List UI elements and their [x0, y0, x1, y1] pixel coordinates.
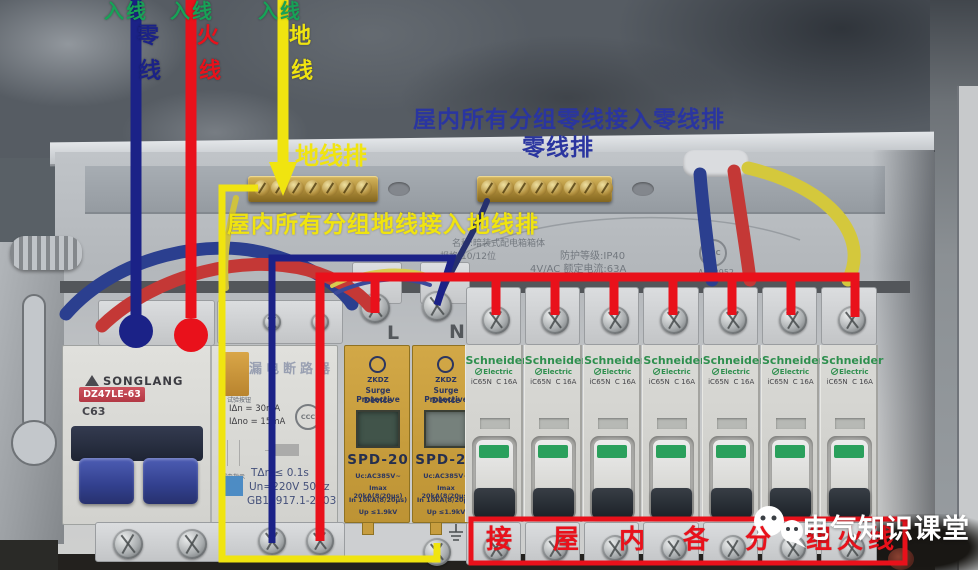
spd-logo-icon [437, 356, 454, 373]
rcd-spec-t: TΔn ≤ 0.1s [251, 467, 309, 479]
spd-spec-in: In 10kA(8/20μs) [345, 496, 411, 504]
ground-note: 屋内所有分组地线接入地线排 [227, 213, 539, 237]
branch-live-char: 屋 [553, 527, 579, 554]
wire-entry-cutout [683, 150, 749, 177]
rcd-model-band: DZ47LE-63 [79, 387, 145, 402]
rcd-circuit-diagram [225, 436, 341, 470]
rcd-ccc-logo: CCC [295, 404, 321, 430]
spd-foot [362, 521, 374, 535]
breaker-toggle-green-stripe [716, 445, 746, 458]
spd-terminal-n-label: N [449, 321, 465, 343]
rcd-test-label: 试验按钮 [227, 395, 251, 404]
terminal-screw [660, 306, 688, 334]
breaker-brand: Schneider [643, 354, 700, 367]
terminal-screw [360, 293, 390, 323]
breaker-toggle-grip [533, 488, 574, 518]
terminal-screw [258, 527, 286, 555]
ccc-serial: A062952 [698, 268, 734, 277]
conduit-connector [10, 236, 82, 270]
breaker-brand-sub: Electric [703, 367, 760, 376]
breaker-brand-sub: Electric [584, 367, 641, 376]
breaker-toggle-grip [711, 488, 752, 518]
brass-terminal-screw [531, 180, 547, 196]
branch-live-char: 内 [619, 527, 645, 554]
incoming-label-char1: 零 [137, 25, 159, 48]
incoming-label-tag: 入线 [258, 1, 302, 22]
breaker-brand: Schneider [821, 354, 878, 367]
branch-live-char: 分 [745, 527, 771, 554]
rcd-module-title: 漏电断路器 [249, 358, 334, 377]
terminal-screw [601, 306, 629, 334]
breaker-toggle-green-stripe [656, 445, 686, 458]
breaker-model: iC65N C 16A [525, 378, 582, 386]
brass-terminal-screw [356, 180, 372, 196]
breaker-model: iC65N C 16A [584, 378, 641, 386]
breaker-toggle-green-stripe [479, 445, 509, 458]
branch-live-char: 接 [486, 527, 512, 554]
bracket-keyhole [11, 420, 57, 466]
schneider-logo-icon [712, 368, 719, 375]
incoming-label-char2: 线 [291, 60, 313, 83]
schneider-logo-icon [772, 368, 779, 375]
ground-bar-label: 地线排 [295, 144, 367, 169]
breaker-model: iC65N C 16A [703, 378, 760, 386]
breaker-model: iC65N C 16A [762, 378, 819, 386]
breaker-label-window [539, 418, 569, 429]
branch-breaker: SchneiderElectriciC65N C 16A [583, 345, 641, 522]
rcd-toggle-handle-right [143, 458, 198, 504]
branch-breaker: SchneiderElectriciC65N C 16A [642, 345, 700, 522]
spd-logo-icon [369, 356, 386, 373]
rail-knockout [632, 182, 654, 196]
brass-terminal-screw [322, 180, 338, 196]
breaker-model: iC65N C 16A [466, 378, 523, 386]
incoming-label-char2: 线 [199, 60, 221, 83]
branch-breaker: SchneiderElectriciC65N C 16A [820, 345, 878, 522]
rcd-rating: C63 [82, 405, 105, 418]
brass-terminal-screw [580, 180, 596, 196]
terminal-screw [263, 313, 281, 331]
brass-terminal-screw [498, 180, 514, 196]
breaker-brand: Schneider [762, 354, 819, 367]
orange-sticker [223, 352, 249, 396]
breaker-brand: Schneider [466, 354, 523, 367]
schneider-logo-icon [653, 368, 660, 375]
brass-terminal-screw [305, 180, 321, 196]
rcd-brand: SONGLANG [103, 374, 183, 388]
brass-terminal-screw [597, 180, 613, 196]
brass-terminal-screw [481, 180, 497, 196]
terminal-screw [482, 306, 510, 334]
spd-desc2: Device [345, 396, 411, 405]
rcd-spec-un: Un=220V 50Hz [249, 481, 329, 493]
spd-status-window [356, 410, 400, 448]
schneider-logo-icon [475, 368, 482, 375]
rcd-top-terminal-block [98, 300, 215, 346]
neutral-note-line1: 屋内所有分组零线接入零线排 [413, 108, 725, 132]
breaker-toggle-green-stripe [775, 445, 805, 458]
breaker-brand-sub: Electric [466, 367, 523, 376]
bracket-keyhole-slot [22, 294, 46, 432]
breaker-brand-sub: Electric [762, 367, 819, 376]
watermark-text: 电气知识课堂 [802, 507, 970, 546]
breaker-label-window [657, 418, 687, 429]
breaker-toggle-grip [651, 488, 692, 518]
rcd-spec-idn: IΔn = 30mA [229, 404, 280, 414]
schneider-logo-icon [831, 368, 838, 375]
ground-bus-bar [248, 176, 378, 202]
breaker-toggle-handle [476, 440, 513, 493]
rcd-spec-idno: IΔno = 15mA [229, 417, 285, 427]
breaker-toggle-handle [831, 440, 868, 493]
breaker-model: iC65N C 16A [643, 378, 700, 386]
neutral-bus-bar [477, 176, 612, 202]
panel-info-current: 4V/AC 额定电流:63A [530, 260, 626, 275]
breaker-toggle-handle [772, 440, 809, 493]
breaker-brand-sub: Electric [821, 367, 878, 376]
incoming-label-char1: 地 [289, 25, 311, 48]
rcd-module-divider [210, 346, 212, 526]
distribution-box-photo: 名称:暗装式配电箱箱体 规格:10/12位 防护等级:IP40 4V/AC 额定… [0, 0, 978, 570]
branch-live-char: 各 [683, 527, 709, 554]
spd-terminal-l-label: L [387, 322, 399, 344]
branch-breaker: SchneiderElectriciC65N C 16A [761, 345, 819, 522]
box-right-outer-edge [957, 86, 978, 570]
terminal-screw [306, 527, 334, 555]
brass-terminal-screw [339, 180, 355, 196]
breaker-toggle-green-stripe [538, 445, 568, 458]
rcd-spec-gb: GB16917.1-2003 [247, 495, 336, 507]
schneider-logo-icon [535, 368, 542, 375]
breaker-label-window [776, 418, 806, 429]
terminal-screw [779, 306, 807, 334]
terminal-screw [422, 291, 452, 321]
rail-knockout [388, 182, 410, 196]
rcd-toggle-bar [71, 426, 203, 461]
breaker-brand: Schneider [703, 354, 760, 367]
spd-foot [430, 521, 442, 535]
main-rcd-breaker: SONGLANG DZ47LE-63 C63 漏电断路器 试验按钮 IΔn = … [62, 345, 338, 525]
incoming-label-char1: 火 [197, 25, 219, 48]
terminal-screw [838, 306, 866, 334]
breaker-brand: Schneider [584, 354, 641, 367]
rcd-toggle-handle-left [79, 458, 134, 504]
neutral-bar-label: 零线排 [522, 136, 594, 160]
breaker-toggle-grip [474, 488, 515, 518]
breaker-toggle-green-stripe [597, 445, 627, 458]
incoming-label-tag: 入线 [170, 1, 214, 22]
branch-breaker: SchneiderElectriciC65N C 16A [524, 345, 582, 522]
terminal-screw [423, 538, 451, 566]
spd-module: ZKDZSurge ProtectiveDeviceSPD-20Uc:AC385… [344, 345, 410, 523]
incoming-label-char2: 线 [139, 60, 161, 83]
spd-spec-uc: Uc:AC385V~ [345, 472, 411, 480]
brass-terminal-screw [288, 180, 304, 196]
spd-status-window [424, 410, 468, 448]
brass-terminal-screw [564, 180, 580, 196]
songlang-logo-icon [85, 375, 99, 386]
ccc-logo: CCC [699, 239, 727, 267]
breaker-brand: Schneider [525, 354, 582, 367]
terminal-screw [311, 313, 329, 331]
branch-breaker: SchneiderElectriciC65N C 16A [465, 345, 523, 522]
breaker-label-window [598, 418, 628, 429]
breaker-toggle-handle [713, 440, 750, 493]
breaker-brand-sub: Electric [643, 367, 700, 376]
terminal-screw [113, 529, 143, 559]
breaker-model: iC65N C 16A [821, 378, 878, 386]
breaker-toggle-green-stripe [834, 445, 864, 458]
brass-terminal-screw [271, 180, 287, 196]
breaker-label-window [717, 418, 747, 429]
breaker-brand-sub: Electric [525, 367, 582, 376]
breaker-label-window [480, 418, 510, 429]
panel-info-spec: 规格:10/12位 [440, 249, 496, 262]
schneider-logo-icon [594, 368, 601, 375]
brass-terminal-screw [514, 180, 530, 196]
breaker-toggle-handle [535, 440, 572, 493]
spd-brand: ZKDZ [345, 376, 411, 384]
bottom-left-shadow [0, 540, 58, 570]
spd-model: SPD-20 [345, 452, 411, 468]
breaker-label-window [835, 418, 865, 429]
brass-terminal-screw [547, 180, 563, 196]
blue-sticker [225, 476, 243, 496]
breaker-toggle-grip [592, 488, 633, 518]
spd-spec-up: Up ≤1.9kV [345, 508, 411, 516]
brass-terminal-screw [254, 180, 270, 196]
terminal-screw [177, 529, 207, 559]
mounting-bracket [0, 242, 64, 544]
incoming-label-tag: 入线 [104, 1, 148, 22]
breaker-toggle-handle [653, 440, 690, 493]
breaker-toggle-handle [594, 440, 631, 493]
branch-breaker: SchneiderElectriciC65N C 16A [702, 345, 760, 522]
